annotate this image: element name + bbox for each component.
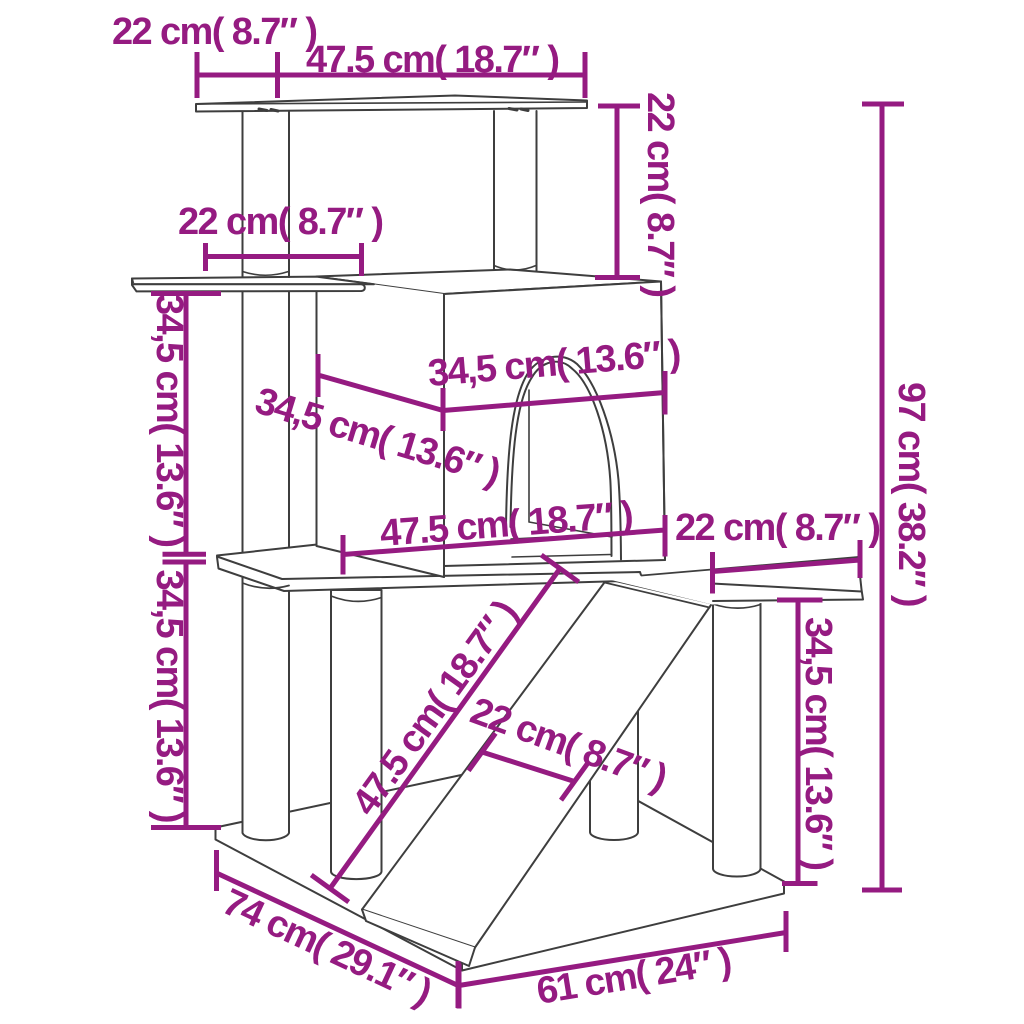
svg-text:22 cm( 8.7″ ): 22 cm( 8.7″ ) [178, 201, 382, 243]
svg-text:34,5 cm( 13.6″ ): 34,5 cm( 13.6″ ) [797, 617, 839, 869]
svg-text:97 cm( 38.2″ ): 97 cm( 38.2″ ) [890, 382, 932, 606]
svg-text:22 cm( 8.7″ ): 22 cm( 8.7″ ) [675, 507, 879, 549]
svg-text:22 cm( 8.7″ ): 22 cm( 8.7″ ) [639, 92, 681, 296]
svg-text:34,5 cm( 13.6″ ): 34,5 cm( 13.6″ ) [148, 570, 190, 822]
svg-text:22 cm( 8.7″ ): 22 cm( 8.7″ ) [112, 11, 316, 53]
svg-text:47.5 cm( 18.7″ ): 47.5 cm( 18.7″ ) [306, 39, 558, 81]
svg-text:34,5 cm( 13.6″ ): 34,5 cm( 13.6″ ) [148, 294, 190, 546]
